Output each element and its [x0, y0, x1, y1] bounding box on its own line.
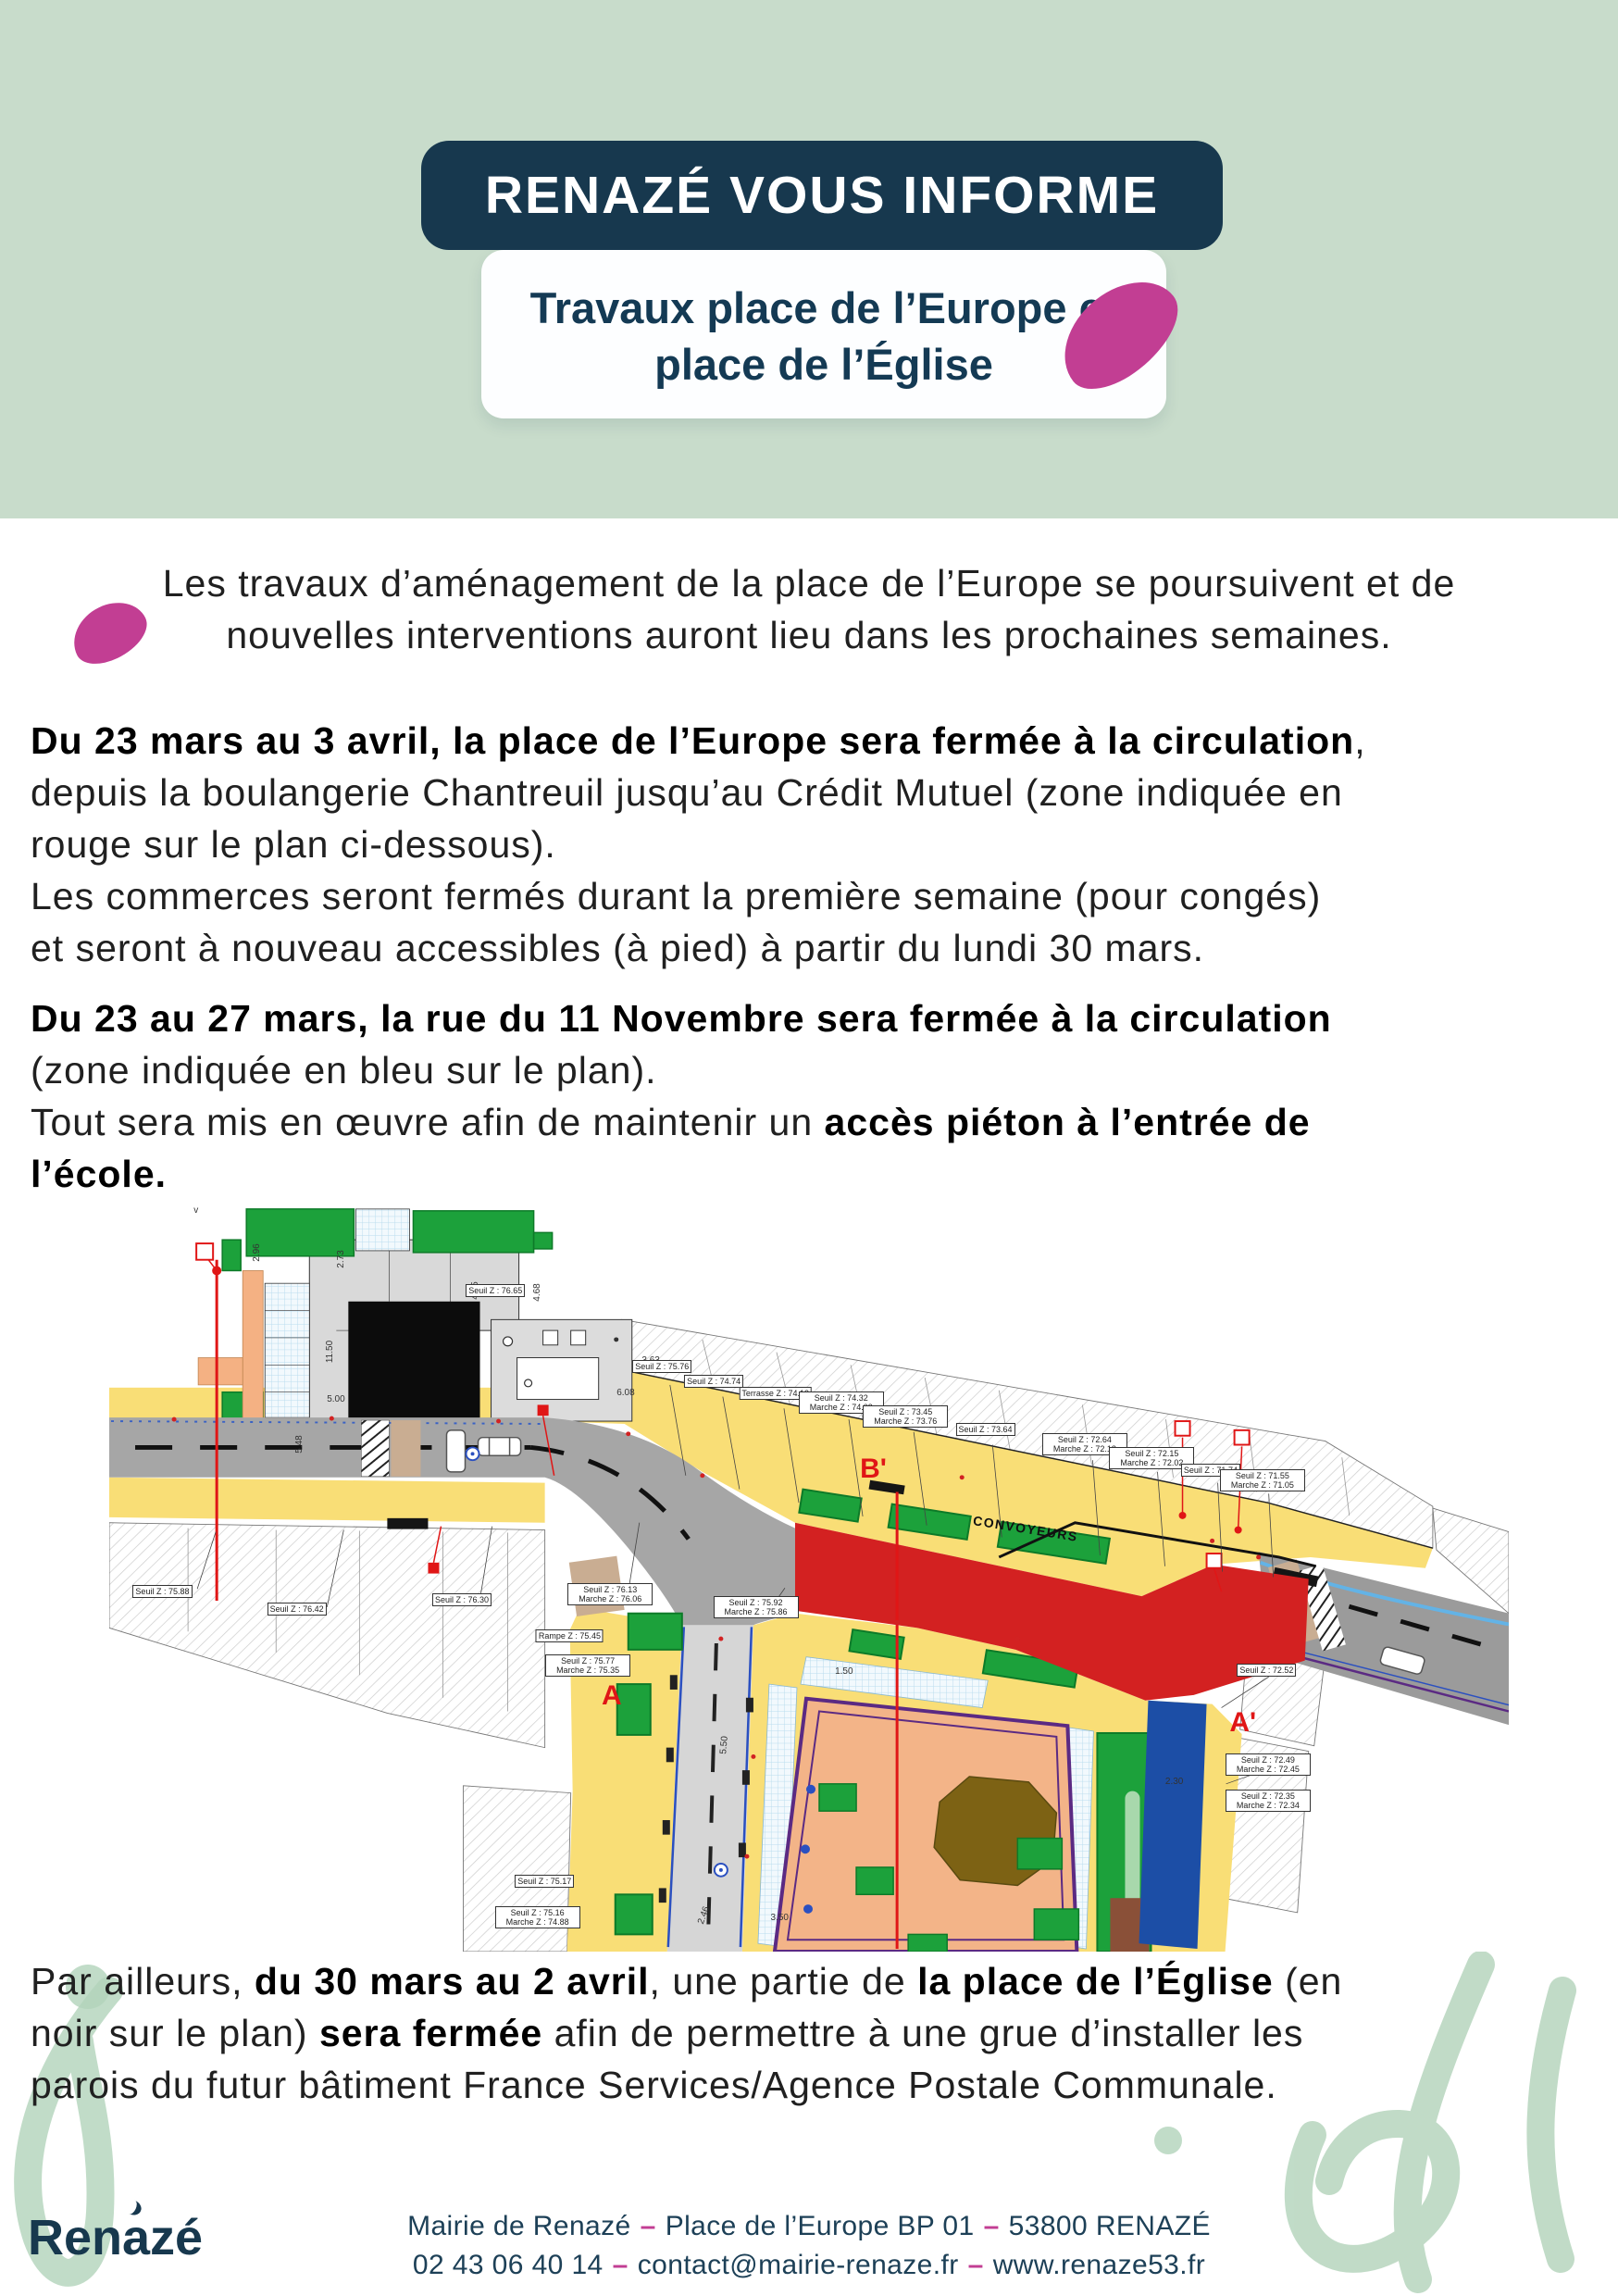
text-line: noir sur le plan) sera fermée afin de pe… — [31, 2007, 1609, 2059]
separator-dash: – — [604, 2250, 638, 2280]
text-line: Les commerces seront fermés durant la pr… — [31, 870, 1609, 922]
map-overlays: Seuil Z : 75.88Seuil Z : 76.42Seuil Z : … — [109, 1204, 1509, 1952]
text-line: Du 23 au 27 mars, la rue du 11 Novembre … — [31, 992, 1609, 1044]
map-roadlabel: CONVOYEURS — [973, 1514, 1080, 1545]
bold-segment: Du 23 mars au 3 avril, la place de l’Eur… — [31, 719, 1354, 762]
bold-segment: sera fermée — [319, 2012, 542, 2054]
map-dim: 4.68 — [533, 1283, 542, 1301]
map-callout: Seuil Z : 71.55 Marche Z : 71.05 — [1220, 1469, 1305, 1491]
footer-mairie: Mairie de Renazé — [407, 2211, 631, 2241]
map-callout: Seuil Z : 76.30 — [432, 1593, 492, 1606]
header-banner: RENAZÉ VOUS INFORME — [421, 141, 1223, 250]
map-dim: 11.50 — [326, 1341, 335, 1363]
text-line: Du 23 mars au 3 avril, la place de l’Eur… — [31, 715, 1609, 767]
text-line: (zone indiquée en bleu sur le plan). — [31, 1044, 1609, 1096]
subtitle-line2: place de l’Église — [481, 336, 1166, 393]
text-segment: Par ailleurs, — [31, 1960, 255, 2003]
bold-segment: du 30 mars au 2 avril — [255, 1960, 650, 2003]
text-segment: (en — [1274, 1960, 1343, 2003]
text-line: l’école. — [31, 1148, 1609, 1200]
text-segment: , une partie de — [650, 1960, 918, 2003]
text-segment: Tout sera mis en œuvre afin de maintenir… — [31, 1101, 825, 1143]
map-callout: Seuil Z : 75.17 — [515, 1875, 574, 1888]
text-line: et seront à nouveau accessibles (à pied)… — [31, 922, 1609, 974]
map-dim: v — [193, 1206, 198, 1216]
text-line: depuis la boulangerie Chantreuil jusqu’a… — [31, 767, 1609, 818]
bold-segment: Du 23 au 27 mars, la rue du 11 Novembre … — [31, 997, 1332, 1040]
map-callout: Seuil Z : 76.42 — [268, 1603, 327, 1616]
map-callout: Seuil Z : 73.64 — [955, 1423, 1014, 1436]
footer-city: 53800 RENAZÉ — [1009, 2211, 1211, 2241]
separator-dash: – — [975, 2211, 1009, 2241]
text-segment: afin de permettre à une grue d’installer… — [542, 2012, 1303, 2054]
paragraph-closure-europe: Du 23 mars au 3 avril, la place de l’Eur… — [31, 715, 1609, 974]
footer-phone: 02 43 06 40 14 — [413, 2250, 604, 2280]
map-section: B' — [860, 1454, 887, 1485]
map-callout: Seuil Z : 76.13 Marche Z : 76.06 — [567, 1583, 653, 1605]
map-dim: 2.96 — [253, 1244, 262, 1262]
map-dim: 2.46 — [697, 1905, 712, 1926]
map-dim: 5.48 — [295, 1435, 305, 1453]
map-callout: Seuil Z : 72.52 — [1237, 1664, 1296, 1677]
map-dim: 2.73 — [337, 1250, 346, 1267]
map-dim: 5.00 — [327, 1395, 344, 1404]
map-section: A' — [1229, 1707, 1256, 1739]
map-dim: 1.50 — [835, 1667, 853, 1677]
footer-email: contact@mairie-renaze.fr — [638, 2250, 959, 2280]
map-dim: 5.50 — [719, 1736, 730, 1754]
map-callout: Seuil Z : 75.77 Marche Z : 75.35 — [545, 1654, 630, 1677]
map-dim: 2.30 — [1165, 1778, 1183, 1787]
map-callout: Rampe Z : 75.45 — [536, 1629, 604, 1642]
map-callout: Seuil Z : 75.76 — [632, 1360, 691, 1373]
map-callout: Seuil Z : 72.49 Marche Z : 72.45 — [1226, 1753, 1311, 1776]
banner-title: RENAZÉ VOUS INFORME — [485, 165, 1159, 226]
paragraph-closure-novembre: Du 23 au 27 mars, la rue du 11 Novembre … — [31, 992, 1609, 1200]
bold-segment: l’école. — [31, 1153, 167, 1195]
footer-address-line: Mairie de Renazé–Place de l’Europe BP 01… — [0, 2211, 1618, 2242]
map-callout: Seuil Z : 72.35 Marche Z : 72.34 — [1226, 1790, 1311, 1812]
text-segment: , — [1354, 719, 1365, 762]
map-callout: Seuil Z : 75.92 Marche Z : 75.86 — [714, 1596, 799, 1618]
map-section: A — [602, 1680, 622, 1712]
map-dim: 6.08 — [616, 1389, 634, 1398]
flourish-dot-right — [1154, 2127, 1182, 2154]
map-callout: Seuil Z : 74.74 — [684, 1375, 743, 1388]
text-line: nouvelles interventions auront lieu dans… — [0, 609, 1618, 661]
text-line: Tout sera mis en œuvre afin de maintenir… — [31, 1096, 1609, 1148]
map-callout: Seuil Z : 76.65 — [466, 1284, 525, 1297]
map-callout: Seuil Z : 75.88 — [132, 1585, 192, 1598]
footer-address: Place de l’Europe BP 01 — [666, 2211, 975, 2241]
map-dim: 3.50 — [771, 1914, 789, 1923]
bold-segment: accès piéton à l’entrée de — [825, 1101, 1311, 1143]
text-line: Par ailleurs, du 30 mars au 2 avril, une… — [31, 1955, 1609, 2007]
map-callout: Seuil Z : 75.16 Marche Z : 74.88 — [495, 1906, 580, 1928]
separator-dash: – — [959, 2250, 993, 2280]
paragraph-closure-eglise: Par ailleurs, du 30 mars au 2 avril, une… — [31, 1955, 1609, 2111]
paragraph-intro: Les travaux d’aménagement de la place de… — [0, 557, 1618, 661]
bold-segment: la place de l’Église — [917, 1960, 1274, 2003]
site-plan-map: Seuil Z : 75.88Seuil Z : 76.42Seuil Z : … — [109, 1204, 1509, 1952]
footer-contact-line: 02 43 06 40 14–contact@mairie-renaze.fr–… — [0, 2250, 1618, 2281]
footer-website: www.renaze53.fr — [993, 2250, 1205, 2280]
map-callout: Seuil Z : 73.45 Marche Z : 73.76 — [863, 1405, 948, 1428]
header-subtitle-box: Travaux place de l’Europe et place de l’… — [481, 250, 1166, 418]
separator-dash: – — [631, 2211, 666, 2241]
text-line: rouge sur le plan ci-dessous). — [31, 818, 1609, 870]
text-line: Les travaux d’aménagement de la place de… — [0, 557, 1618, 609]
text-line: parois du futur bâtiment France Services… — [31, 2059, 1609, 2111]
text-segment: noir sur le plan) — [31, 2012, 319, 2054]
subtitle-line1: Travaux place de l’Europe et — [481, 280, 1166, 336]
